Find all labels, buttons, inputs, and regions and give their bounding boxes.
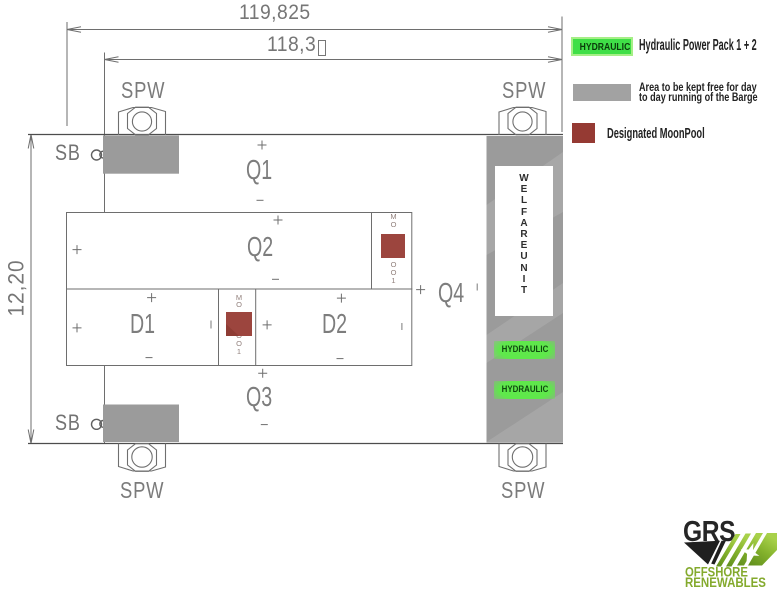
svg-text:RENEWABLES: RENEWABLES bbox=[685, 574, 766, 590]
